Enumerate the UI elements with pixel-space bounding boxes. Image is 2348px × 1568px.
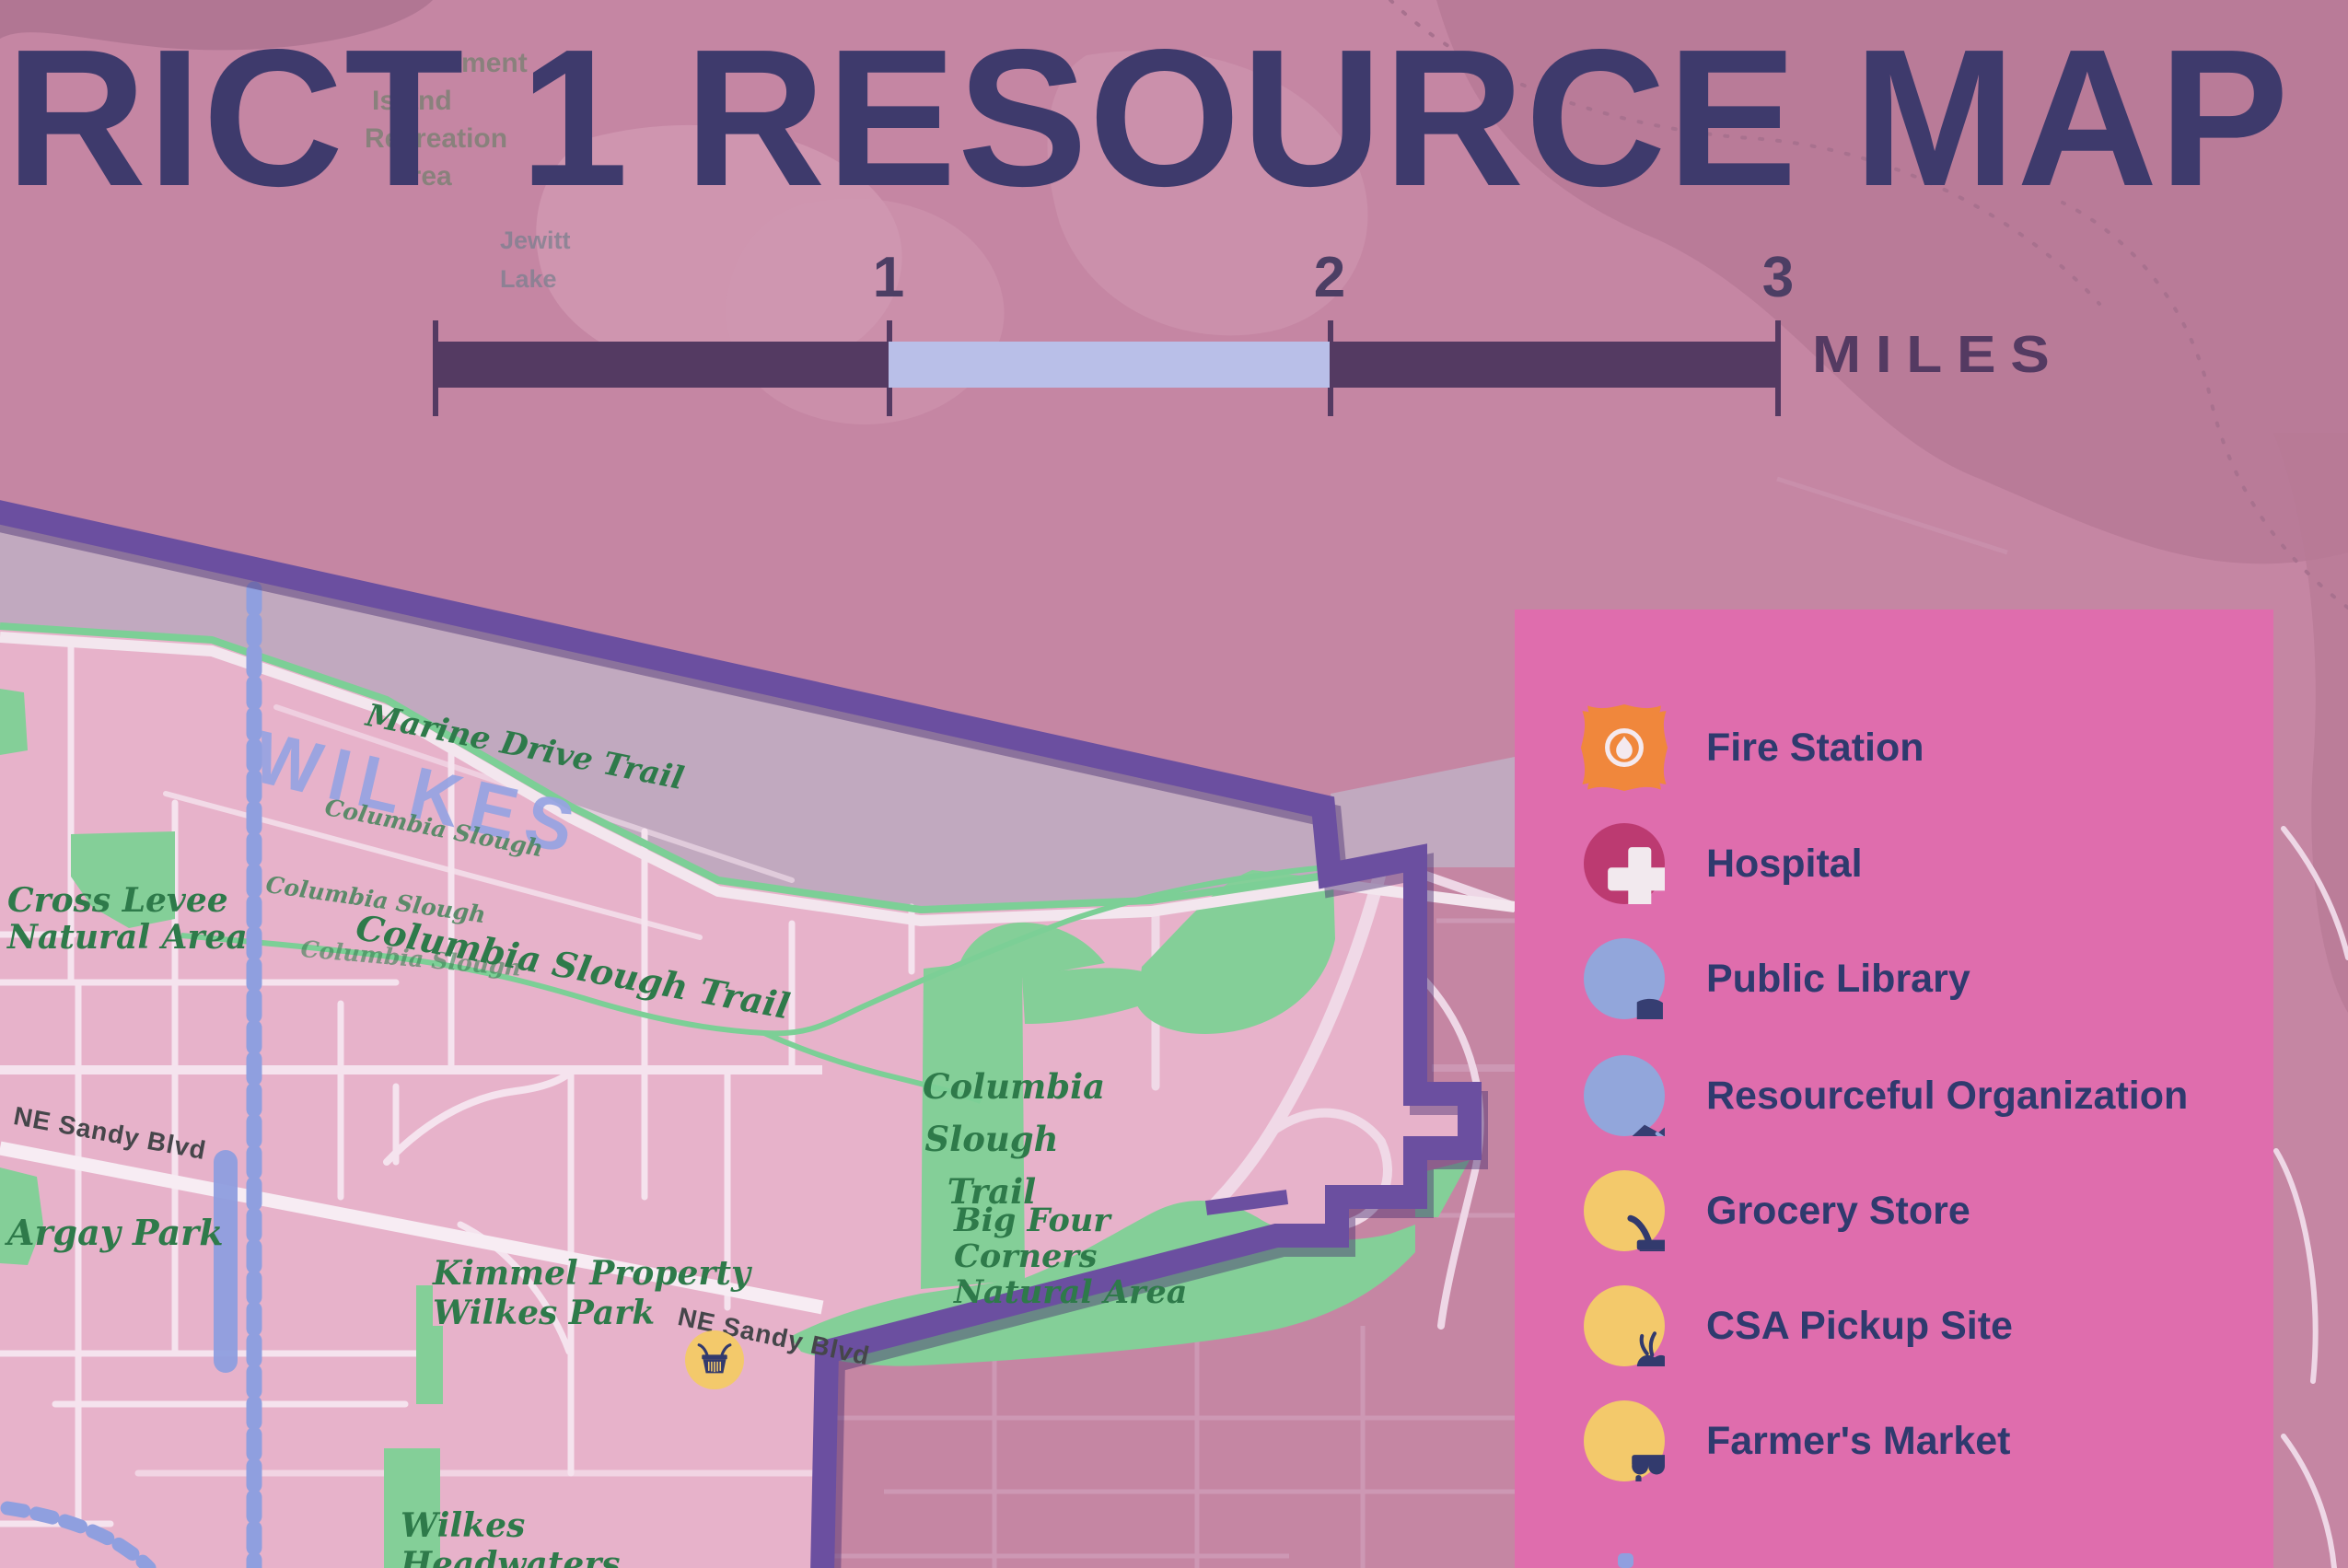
legend-label: Public Library — [1706, 955, 1970, 1003]
partial-next-legend-icon — [1618, 1553, 1633, 1568]
public-library-icon — [1584, 938, 1665, 1019]
hospital-icon — [1584, 823, 1665, 904]
page-title: RICT 1 RESOURCE MAP — [6, 20, 2290, 215]
fire-station-icon — [1578, 702, 1670, 794]
scale-tick-label-2: 2 — [1274, 245, 1385, 310]
grocery-basket-icon — [1584, 1170, 1665, 1251]
scale-segment-light — [889, 342, 1330, 388]
legend-label: Grocery Store — [1706, 1187, 1970, 1235]
legend-row-hospital: Hospital — [1515, 823, 2273, 915]
legend-row-grocery-store: Grocery Store — [1515, 1170, 2273, 1262]
legend-label: Farmer's Market — [1706, 1417, 2011, 1465]
legend-row-resourceful-organization: Resourceful Organization — [1515, 1055, 2273, 1147]
district-resource-map-poster: Government Island Recreation Area Jewitt… — [0, 0, 2348, 1568]
wilkes-headwaters-label: Wilkes Headwaters — [401, 1506, 621, 1568]
legend-panel: Fire Station Hospital Public Library Res… — [1515, 610, 2273, 1568]
legend-label: Hospital — [1706, 840, 1863, 888]
big-four-corners-label: Big Four Corners Natural Area — [954, 1202, 1187, 1310]
legend-label: Resourceful Organization — [1706, 1072, 2188, 1120]
legend-label: CSA Pickup Site — [1706, 1302, 2013, 1350]
grocery-store-map-marker — [685, 1330, 744, 1389]
scale-tick-label-3: 3 — [1723, 245, 1833, 310]
csa-produce-icon — [1584, 1285, 1665, 1366]
market-stall-icon — [1584, 1400, 1665, 1481]
cross-levee-natural-area-label: Cross Levee Natural Area — [7, 882, 248, 957]
legend-row-csa-pickup: CSA Pickup Site — [1515, 1285, 2273, 1377]
scale-segment-dark — [1330, 342, 1778, 388]
legend-row-public-library: Public Library — [1515, 938, 2273, 1030]
grocery-basket-icon — [696, 1342, 733, 1378]
legend-row-farmers-market: Farmer's Market — [1515, 1400, 2273, 1493]
handshake-icon — [1584, 1055, 1665, 1136]
legend-row-fire-station: Fire Station — [1515, 702, 2273, 794]
argay-park-label: Argay Park — [7, 1214, 224, 1253]
scale-unit-label: MILES — [1812, 324, 2063, 385]
scale-segment-dark — [435, 342, 889, 388]
columbia-slough-trail-vertical-label: Columbia Slough Trail — [923, 1061, 1061, 1218]
scale-bar: 1 2 3 — [435, 249, 1778, 424]
scale-tick-label-1: 1 — [833, 245, 944, 310]
legend-label: Fire Station — [1706, 724, 1924, 772]
